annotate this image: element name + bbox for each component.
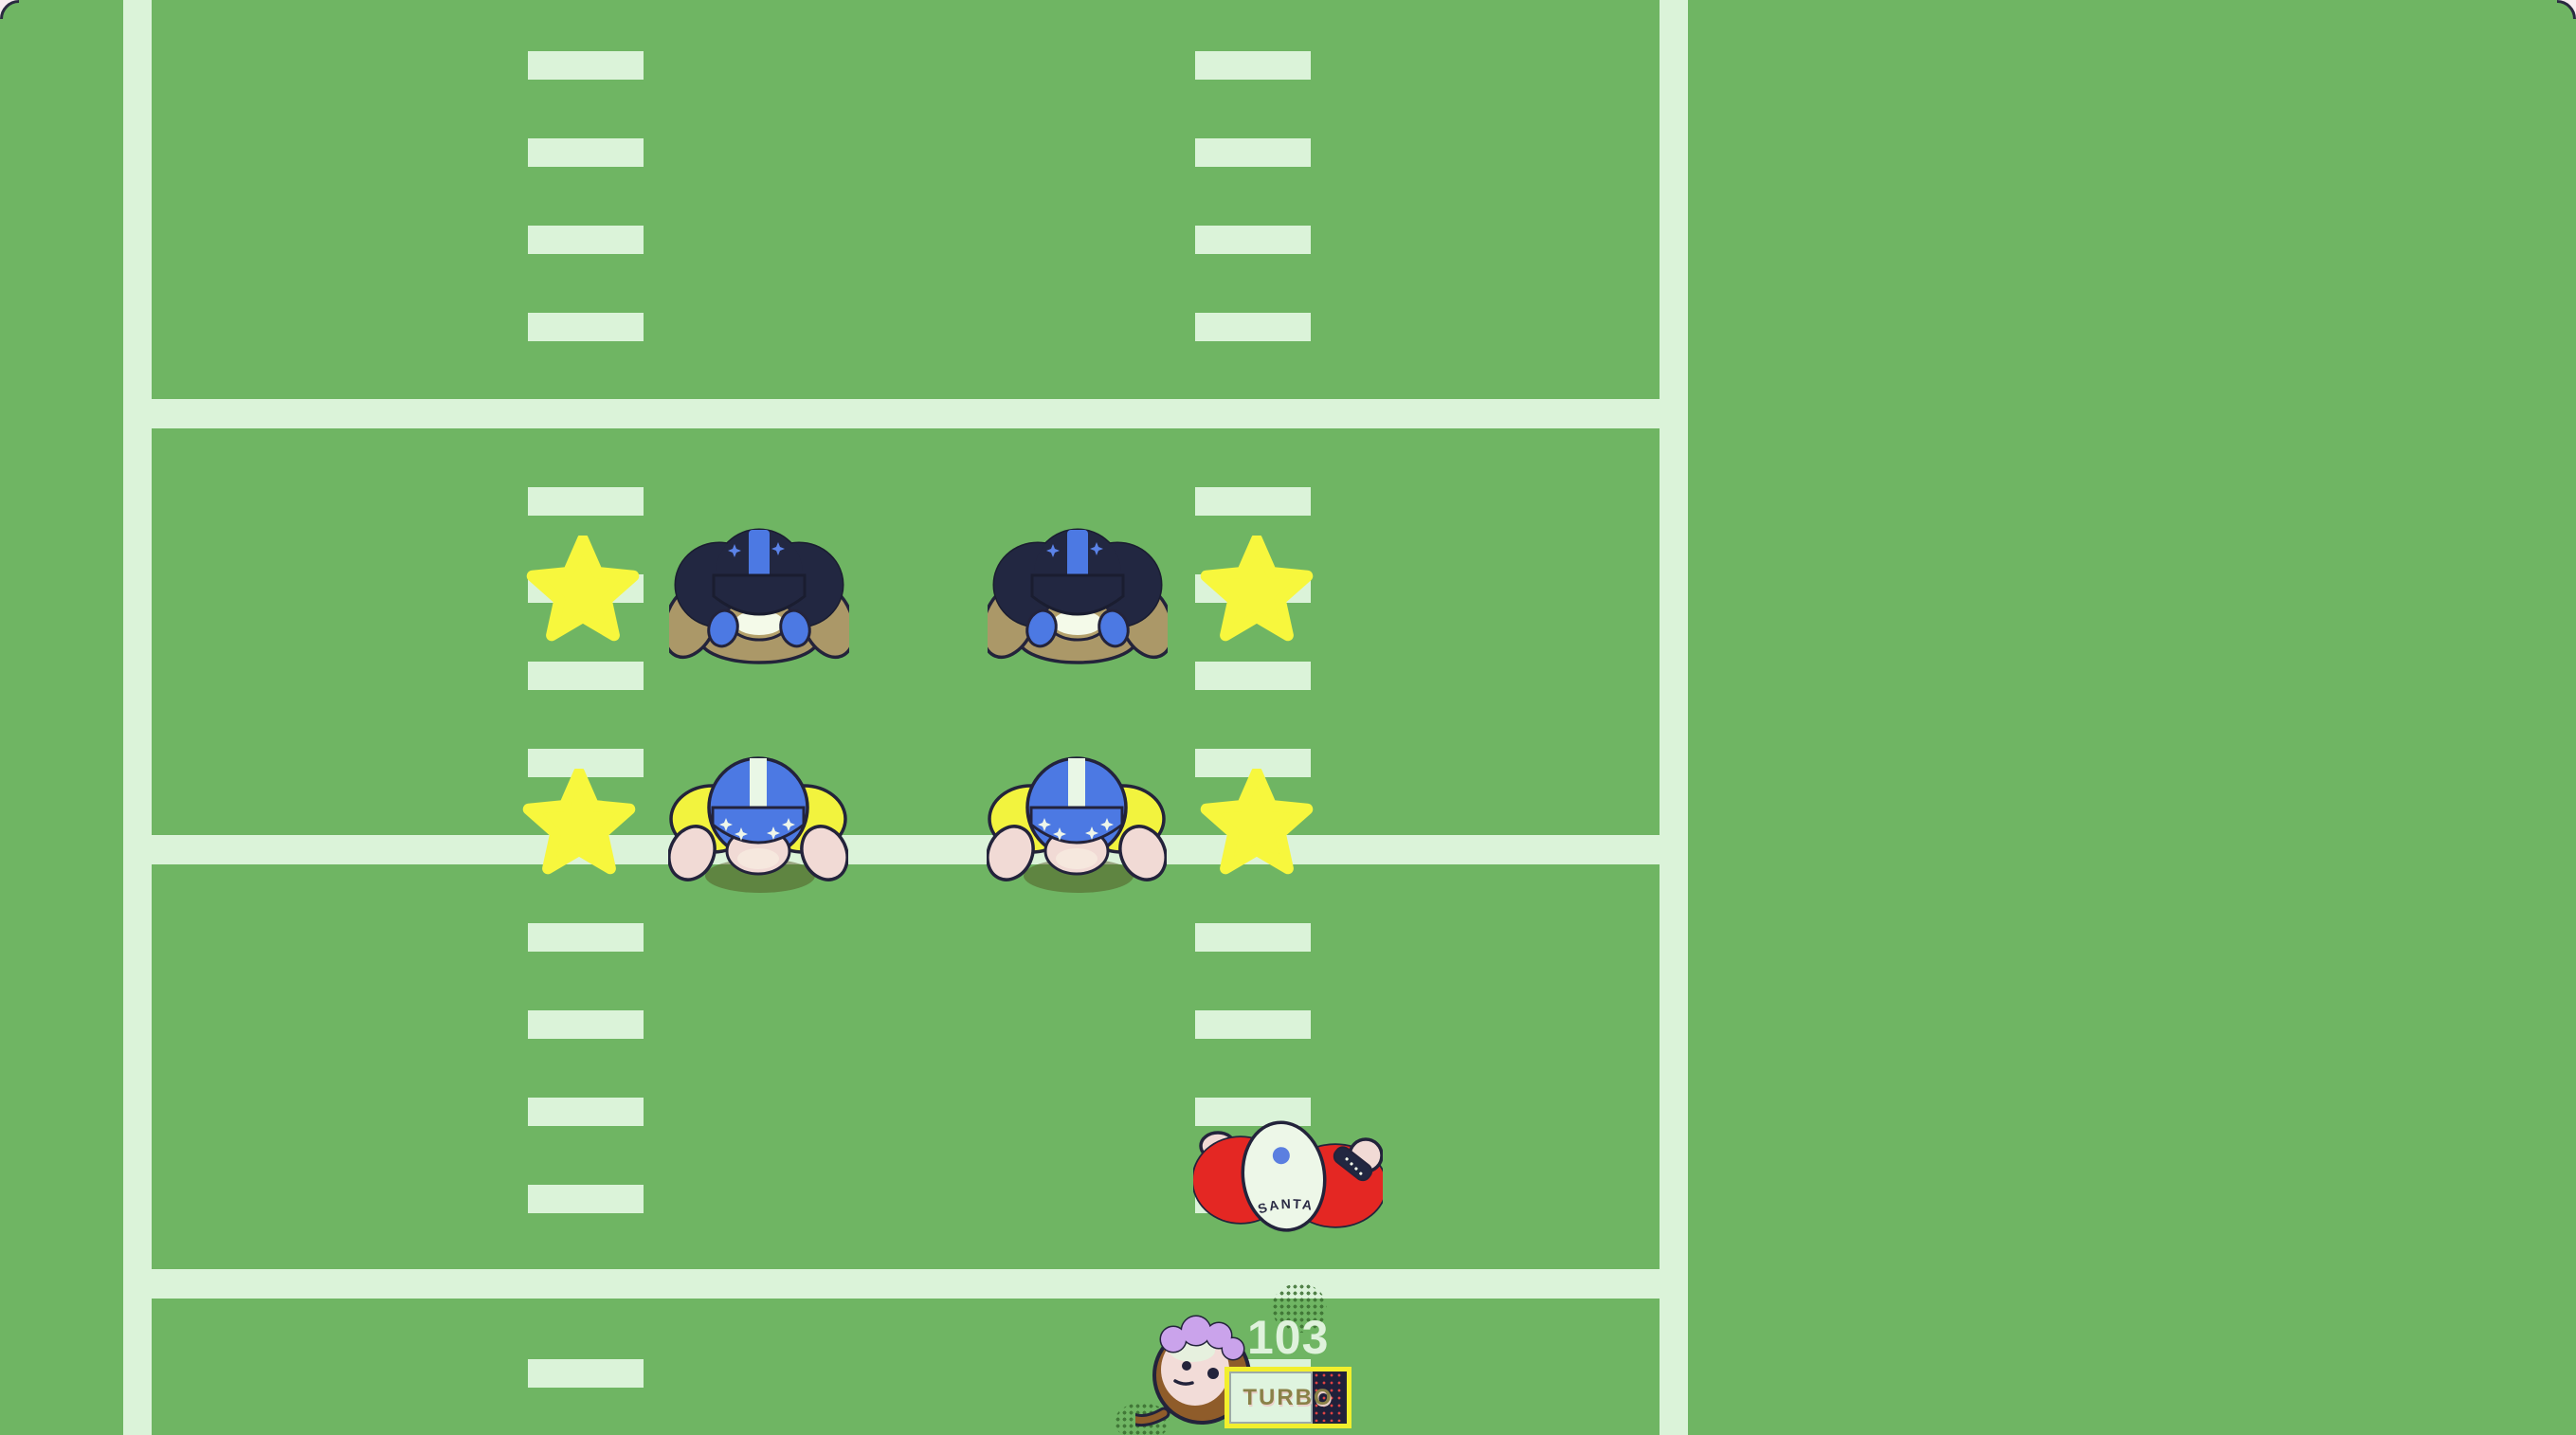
- hash-mark: [528, 138, 644, 167]
- yard-line-1: [123, 399, 1688, 428]
- hash-mark: [528, 51, 644, 80]
- turbo-meter-label: TURBO: [1229, 1371, 1347, 1424]
- yard-line-2: [123, 835, 1688, 864]
- hash-mark: [528, 1098, 644, 1126]
- score-label: 103: [1247, 1310, 1329, 1365]
- hash-mark: [528, 226, 644, 254]
- opponent-dark-player-2: [988, 517, 1168, 668]
- hash-mark: [528, 487, 644, 516]
- canvas-corner-top-left: [0, 0, 19, 19]
- yard-line-3: [123, 1269, 1688, 1299]
- sideline-right: [1660, 0, 1688, 1435]
- opponent-dark-player-1: [669, 517, 849, 668]
- sideline-left: [123, 0, 152, 1435]
- hash-mark: [1195, 923, 1311, 952]
- hash-mark: [1195, 1010, 1311, 1039]
- hash-mark: [1195, 138, 1311, 167]
- teammate-blue-player-1: [668, 747, 848, 899]
- hash-mark: [528, 1359, 644, 1388]
- hash-mark: [528, 923, 644, 952]
- hash-mark: [1195, 313, 1311, 341]
- monkey-eye: [1182, 1361, 1191, 1371]
- game-stage[interactable]: SANTA 103 TURBO: [0, 0, 2576, 1435]
- teammate-blue-player-2: [987, 747, 1167, 899]
- hash-mark: [528, 662, 644, 690]
- star-pickup: [1200, 536, 1314, 649]
- hash-mark: [1195, 226, 1311, 254]
- star-pickup: [522, 769, 636, 882]
- canvas-corner-top-right: [2557, 0, 2576, 19]
- santa-player: SANTA: [1193, 1107, 1383, 1249]
- hash-mark: [528, 313, 644, 341]
- hash-mark: [528, 1185, 644, 1213]
- star-pickup: [1200, 769, 1314, 882]
- monkey-eye: [1207, 1368, 1219, 1379]
- hash-mark: [1195, 487, 1311, 516]
- hash-mark: [528, 1010, 644, 1039]
- turbo-meter: TURBO: [1225, 1367, 1351, 1428]
- hash-mark: [1195, 662, 1311, 690]
- star-pickup: [526, 536, 640, 649]
- hash-mark: [1195, 51, 1311, 80]
